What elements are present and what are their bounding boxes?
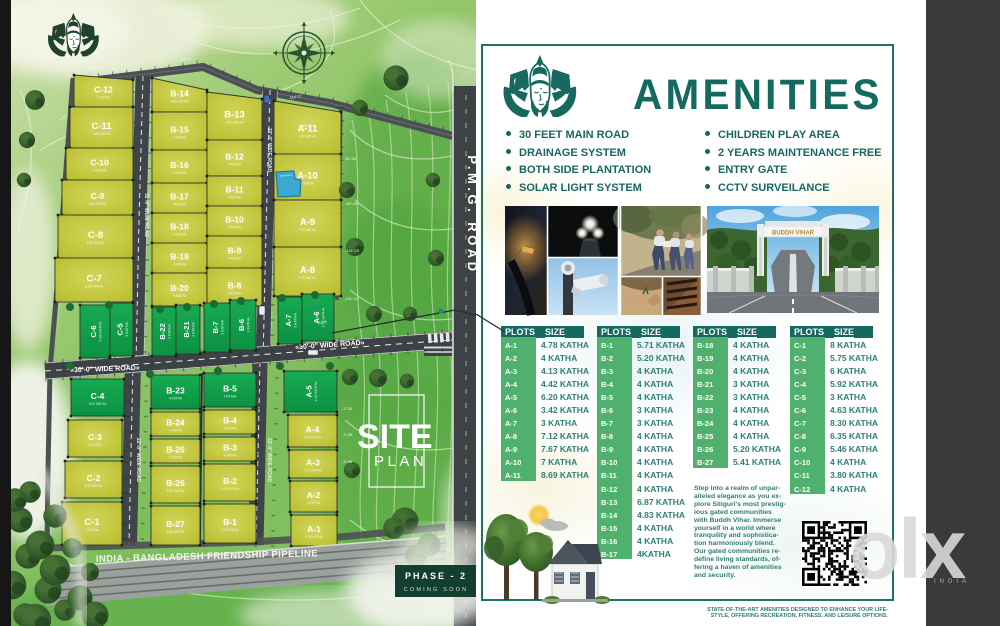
- svg-text:B-11: B-11: [226, 185, 244, 195]
- svg-text:3 KATHA: 3 KATHA: [247, 317, 251, 332]
- svg-text:8 KATHA: 8 KATHA: [85, 528, 99, 532]
- svg-text:SITE: SITE: [357, 418, 433, 456]
- svg-text:B-10: B-10: [225, 215, 244, 225]
- svg-text:B-15: B-15: [170, 125, 189, 135]
- svg-text:B-18: B-18: [170, 222, 189, 232]
- svg-text:7.12 KATHA: 7.12 KATHA: [299, 276, 317, 280]
- svg-text:4 KATHA: 4 KATHA: [228, 257, 242, 261]
- svg-text:B-9: B-9: [228, 246, 242, 256]
- svg-text:3.80 KATHA: 3.80 KATHA: [93, 132, 111, 136]
- svg-text:4.83 KATHA: 4.83 KATHA: [171, 100, 189, 104]
- svg-text:4.78 KATHA: 4.78 KATHA: [305, 535, 323, 539]
- svg-text:B-26: B-26: [166, 478, 185, 488]
- svg-text:B-13: B-13: [224, 110, 245, 121]
- svg-text:35'-26: 35'-26: [345, 156, 357, 161]
- svg-text:C-12: C-12: [94, 85, 113, 95]
- svg-text:5.20 KATHA: 5.20 KATHA: [167, 489, 185, 493]
- svg-text:4 KATHA: 4 KATHA: [169, 429, 183, 433]
- svg-text:5.20 KATHA: 5.20 KATHA: [221, 487, 239, 491]
- svg-text:B-2: B-2: [223, 476, 237, 486]
- svg-text:C-10: C-10: [90, 158, 109, 168]
- svg-text:4 KATHA: 4 KATHA: [223, 454, 237, 458]
- svg-text:C-7: C-7: [86, 274, 101, 285]
- svg-text:B-17: B-17: [170, 192, 189, 202]
- svg-text:4.13 KATHA: 4.13 KATHA: [304, 469, 322, 473]
- svg-text:B-21: B-21: [182, 321, 191, 337]
- svg-text:5.41 KATHA: 5.41 KATHA: [167, 530, 185, 534]
- svg-text:B-19: B-19: [170, 252, 189, 262]
- svg-text:B-23: B-23: [166, 386, 185, 396]
- svg-text:-73'-5: -73'-5: [180, 56, 191, 62]
- svg-text:4 KATHA: 4 KATHA: [173, 233, 187, 237]
- svg-text:A-3: A-3: [306, 458, 320, 468]
- svg-text:6.87 KATHA: 6.87 KATHA: [226, 121, 244, 125]
- svg-text:B-16: B-16: [170, 160, 189, 170]
- svg-text:3 KATHA: 3 KATHA: [294, 313, 298, 328]
- svg-text:C-3: C-3: [88, 432, 102, 442]
- svg-text:A-2: A-2: [307, 490, 321, 500]
- svg-text:B-1: B-1: [223, 517, 237, 527]
- svg-text:6.35 KATHA: 6.35 KATHA: [87, 241, 105, 245]
- svg-text:A-1: A-1: [307, 524, 321, 534]
- svg-text:5.71 KATHA: 5.71 KATHA: [221, 528, 239, 532]
- svg-text:C-6: C-6: [89, 325, 98, 337]
- svg-text:4KATHA: 4KATHA: [173, 203, 186, 207]
- svg-text:PLAN: PLAN: [374, 453, 427, 470]
- svg-text:-101'-20: -101'-20: [344, 296, 359, 301]
- svg-text:5.75 KATHA: 5.75 KATHA: [85, 484, 103, 488]
- svg-text:C-5: C-5: [116, 323, 125, 335]
- svg-text:-111'-25: -111'-25: [345, 248, 360, 253]
- svg-text:B-4: B-4: [223, 416, 237, 426]
- svg-text:4 KATHA: 4 KATHA: [173, 171, 187, 175]
- svg-text:4 KATHA: 4 KATHA: [97, 96, 111, 100]
- svg-text:BUDDH VIHAR: BUDDH VIHAR: [772, 231, 815, 237]
- svg-text:PHASE - 2: PHASE - 2: [405, 571, 467, 581]
- svg-text:3 KATHA: 3 KATHA: [221, 320, 225, 335]
- svg-text:22'-0" WIDE ROAD: 22'-0" WIDE ROAD: [266, 128, 272, 173]
- svg-text:4 KATHA: 4 KATHA: [307, 501, 321, 505]
- svg-text:4.42 KATHA: 4.42 KATHA: [304, 436, 322, 440]
- svg-text:B-3: B-3: [223, 443, 237, 453]
- svg-text:7 KATHA: 7 KATHA: [301, 182, 315, 186]
- svg-text:C-4: C-4: [91, 391, 105, 401]
- svg-text:3 KATHA: 3 KATHA: [168, 324, 172, 339]
- svg-text:B-22: B-22: [158, 323, 167, 339]
- svg-text:4 KATHA: 4 KATHA: [173, 263, 187, 267]
- svg-text:A-5: A-5: [305, 385, 314, 397]
- svg-text:B-20: B-20: [170, 283, 189, 293]
- svg-text:-98'-10": -98'-10": [300, 123, 314, 128]
- svg-text:7.67 KATHA: 7.67 KATHA: [299, 228, 317, 232]
- svg-text:3 KATHA: 3 KATHA: [125, 322, 129, 337]
- svg-text:4.63 KATHA: 4.63 KATHA: [99, 321, 103, 341]
- svg-text:4 KATHA: 4 KATHA: [228, 163, 242, 167]
- svg-text:-3'-55: -3'-55: [342, 432, 353, 437]
- svg-text:B-25: B-25: [166, 445, 185, 455]
- svg-text:3 KATHA: 3 KATHA: [192, 322, 196, 337]
- svg-text:4 KATHA: 4 KATHA: [228, 226, 242, 230]
- svg-text:B-27: B-27: [166, 519, 185, 529]
- svg-text:4 KATHA: 4 KATHA: [223, 395, 237, 399]
- svg-text:4 KATHA: 4 KATHA: [228, 196, 242, 200]
- svg-text:C-9: C-9: [91, 191, 105, 201]
- svg-text:B-12: B-12: [225, 152, 244, 162]
- svg-text:A-9: A-9: [300, 217, 315, 228]
- svg-text:A-8: A-8: [300, 265, 315, 276]
- svg-text:A-4: A-4: [306, 425, 320, 435]
- svg-text:COMING SOON: COMING SOON: [404, 587, 469, 593]
- svg-text:4 KATHA: 4 KATHA: [228, 292, 242, 296]
- svg-text:6.20 KATHA: 6.20 KATHA: [314, 381, 318, 401]
- svg-text:-85'-28: -85'-28: [345, 201, 358, 206]
- svg-text:A-7: A-7: [284, 314, 293, 326]
- svg-text:4 KATHA: 4 KATHA: [93, 169, 107, 173]
- svg-text:8.30 KATHA: 8.30 KATHA: [85, 285, 103, 289]
- svg-text:B-24: B-24: [166, 418, 185, 428]
- svg-text:4 KATHA: 4 KATHA: [169, 456, 183, 460]
- svg-text:4 KATHA: 4 KATHA: [223, 427, 237, 431]
- svg-text:C-1: C-1: [84, 517, 100, 528]
- svg-text:5.46 KATHA: 5.46 KATHA: [89, 202, 107, 206]
- svg-text:B-14: B-14: [170, 89, 189, 99]
- svg-text:22'-0" WIDE ROAD: 22'-0" WIDE ROAD: [266, 438, 272, 483]
- svg-text:C-2: C-2: [87, 473, 101, 483]
- svg-text:C-11: C-11: [91, 121, 112, 132]
- svg-text:4 KATHA: 4 KATHA: [173, 294, 187, 298]
- svg-text:C-8: C-8: [88, 230, 103, 241]
- svg-text:8.69 KATHA: 8.69 KATHA: [299, 135, 317, 139]
- svg-text:B-8: B-8: [228, 281, 242, 291]
- svg-text:4 KATHA: 4 KATHA: [169, 397, 183, 401]
- svg-text:B-5: B-5: [223, 384, 237, 394]
- svg-text:-3'-35: -3'-35: [342, 406, 353, 411]
- svg-text:B-6: B-6: [237, 319, 246, 331]
- svg-text:6 KATHA: 6 KATHA: [88, 443, 102, 447]
- svg-text:-3'-58: -3'-58: [342, 459, 353, 464]
- svg-text:5.92 KATHA: 5.92 KATHA: [89, 402, 107, 406]
- svg-text:B-7: B-7: [211, 321, 220, 333]
- svg-text:22'-0" WIDE ROAD: 22'-0" WIDE ROAD: [135, 438, 141, 483]
- svg-text:4 KATHA: 4 KATHA: [173, 136, 187, 140]
